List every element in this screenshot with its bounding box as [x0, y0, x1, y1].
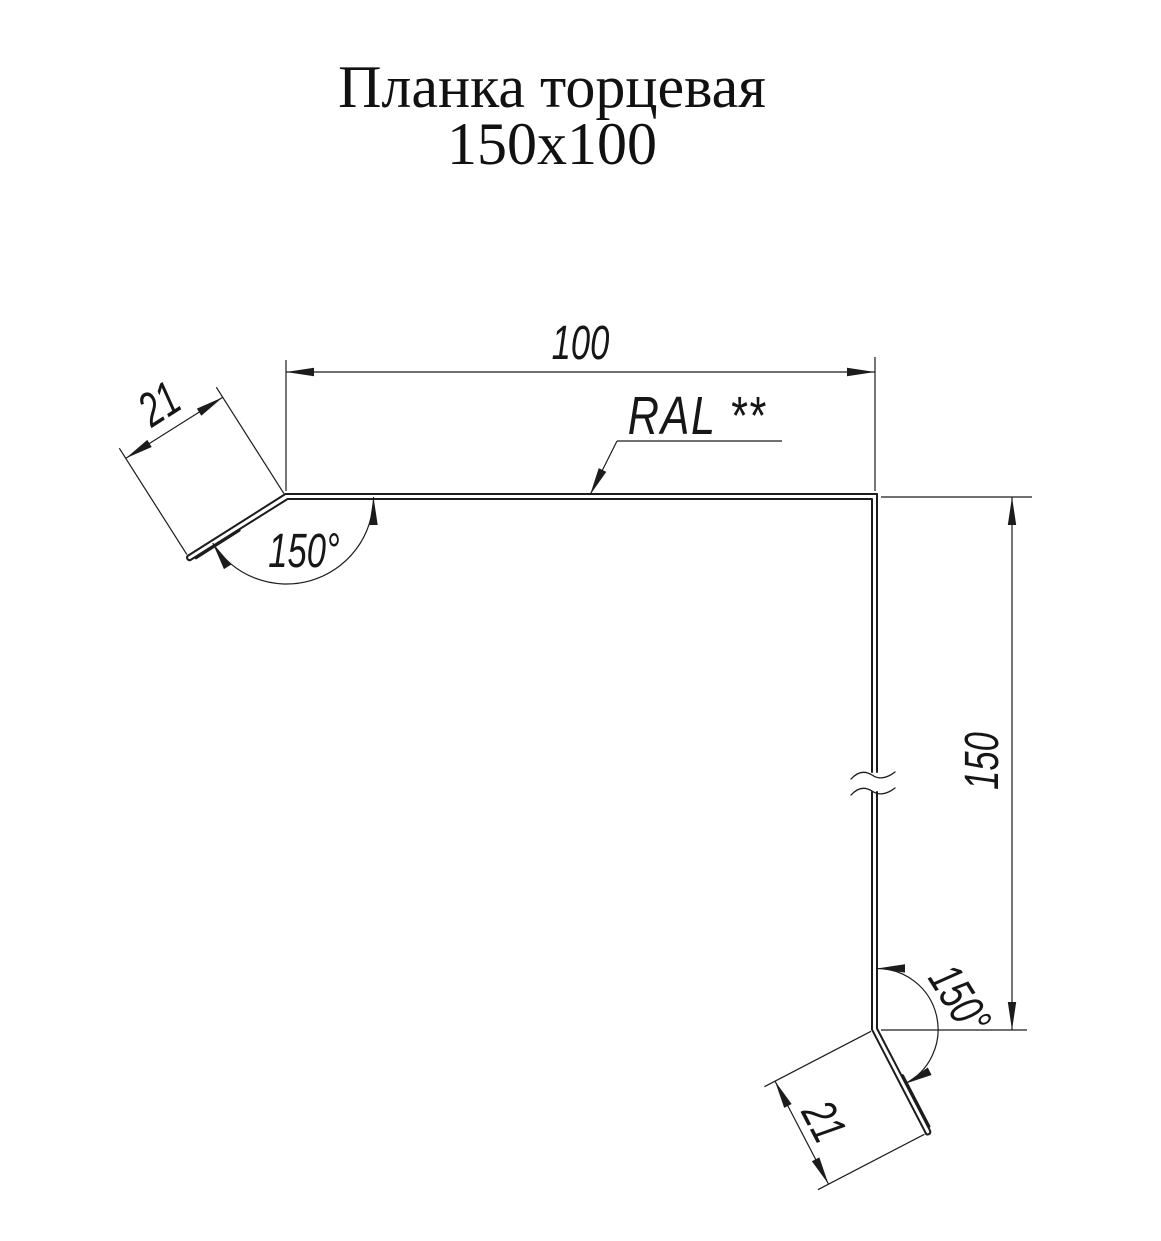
extension-line	[818, 1134, 925, 1189]
dimension-flange-bottom: 21	[764, 1031, 924, 1189]
dimension-height: 150	[881, 497, 1032, 1030]
drawing-page: Планка торцевая 150x100 100	[0, 0, 1161, 1241]
dimension-flange-top: 21	[119, 371, 284, 555]
extension-line	[216, 387, 284, 493]
angle-top-value: 150°	[268, 523, 339, 577]
angle-top: 150°	[213, 497, 374, 584]
dimension-flange-bottom-value: 21	[791, 1091, 857, 1151]
leader-arrow-line	[590, 441, 617, 495]
material-callout: RAL **	[590, 387, 782, 495]
profile-inner-bottom	[872, 792, 926, 1133]
dimension-width: 100	[286, 315, 875, 491]
extension-line	[764, 1031, 871, 1086]
extension-line	[119, 448, 187, 554]
break-symbol-wave-upper	[851, 772, 895, 779]
drawing-title: Планка торцевая 150x100	[338, 54, 766, 177]
title-line-2: 150x100	[447, 111, 657, 177]
dimension-height-value: 150	[954, 732, 1008, 790]
profile-section	[187, 494, 930, 1134]
dimension-flange-top-value: 21	[128, 371, 190, 438]
hem-fold-top-left	[196, 530, 239, 557]
material-label: RAL **	[628, 387, 767, 447]
technical-drawing-canvas: Планка торцевая 150x100 100	[0, 0, 1161, 1241]
dimension-width-value: 100	[552, 315, 610, 369]
flange-tip-cap-top-left	[187, 556, 190, 560]
